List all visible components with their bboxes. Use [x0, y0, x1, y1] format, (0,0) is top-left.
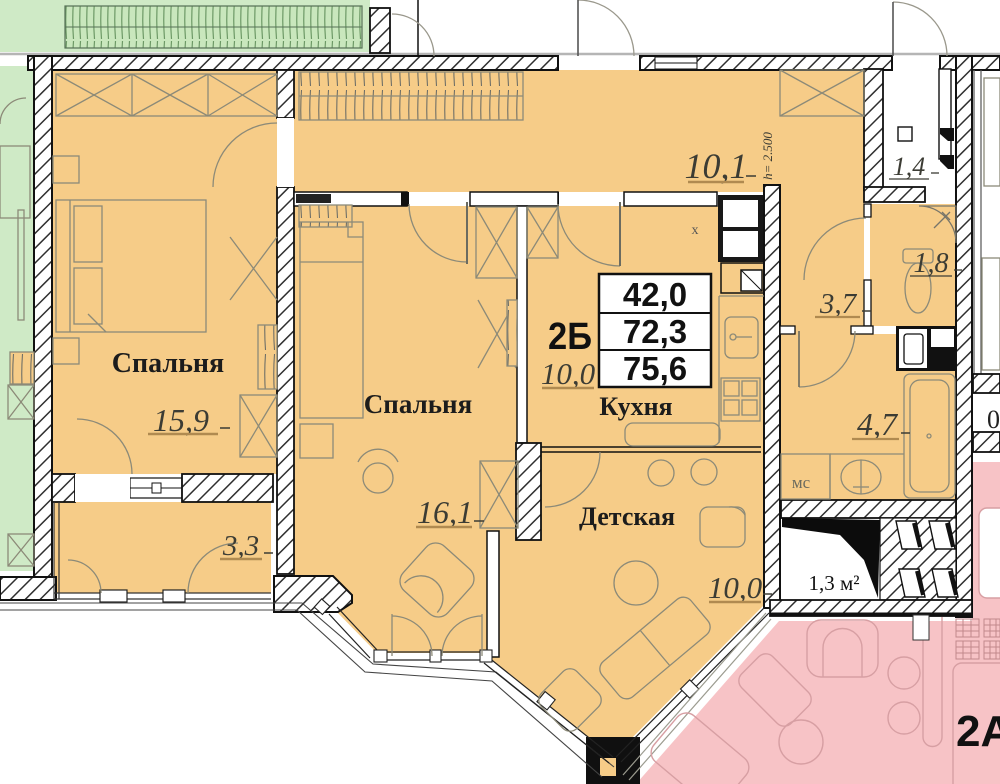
svg-text:1,8: 1,8 — [914, 248, 949, 279]
svg-text:мс: мс — [792, 473, 811, 492]
svg-text:4,7: 4,7 — [857, 406, 899, 442]
svg-text:42,0: 42,0 — [623, 276, 687, 313]
svg-text:Кухня: Кухня — [599, 392, 672, 421]
svg-text:10,0: 10,0 — [541, 356, 596, 391]
svg-text:1,3 м²: 1,3 м² — [808, 571, 859, 595]
svg-text:10,0: 10,0 — [708, 570, 763, 605]
svg-text:3,3: 3,3 — [222, 530, 259, 562]
svg-text:10,1: 10,1 — [685, 146, 748, 186]
svg-text:72,3: 72,3 — [623, 313, 687, 350]
svg-text:Детская: Детская — [579, 502, 675, 531]
svg-text:2Б: 2Б — [548, 316, 592, 358]
svg-text:2А: 2А — [956, 707, 1000, 756]
svg-text:16,1: 16,1 — [417, 494, 473, 530]
svg-text:75,6: 75,6 — [623, 350, 687, 387]
svg-text:3,7: 3,7 — [819, 288, 858, 320]
svg-text:0: 0 — [987, 405, 1000, 434]
svg-text:Спальня: Спальня — [364, 389, 472, 419]
svg-text:15,9: 15,9 — [153, 402, 209, 438]
svg-text:Спальня: Спальня — [112, 348, 224, 379]
svg-text:х: х — [692, 223, 699, 238]
svg-text:1,4: 1,4 — [893, 152, 926, 181]
svg-text:h= 2.500: h= 2.500 — [760, 132, 775, 180]
